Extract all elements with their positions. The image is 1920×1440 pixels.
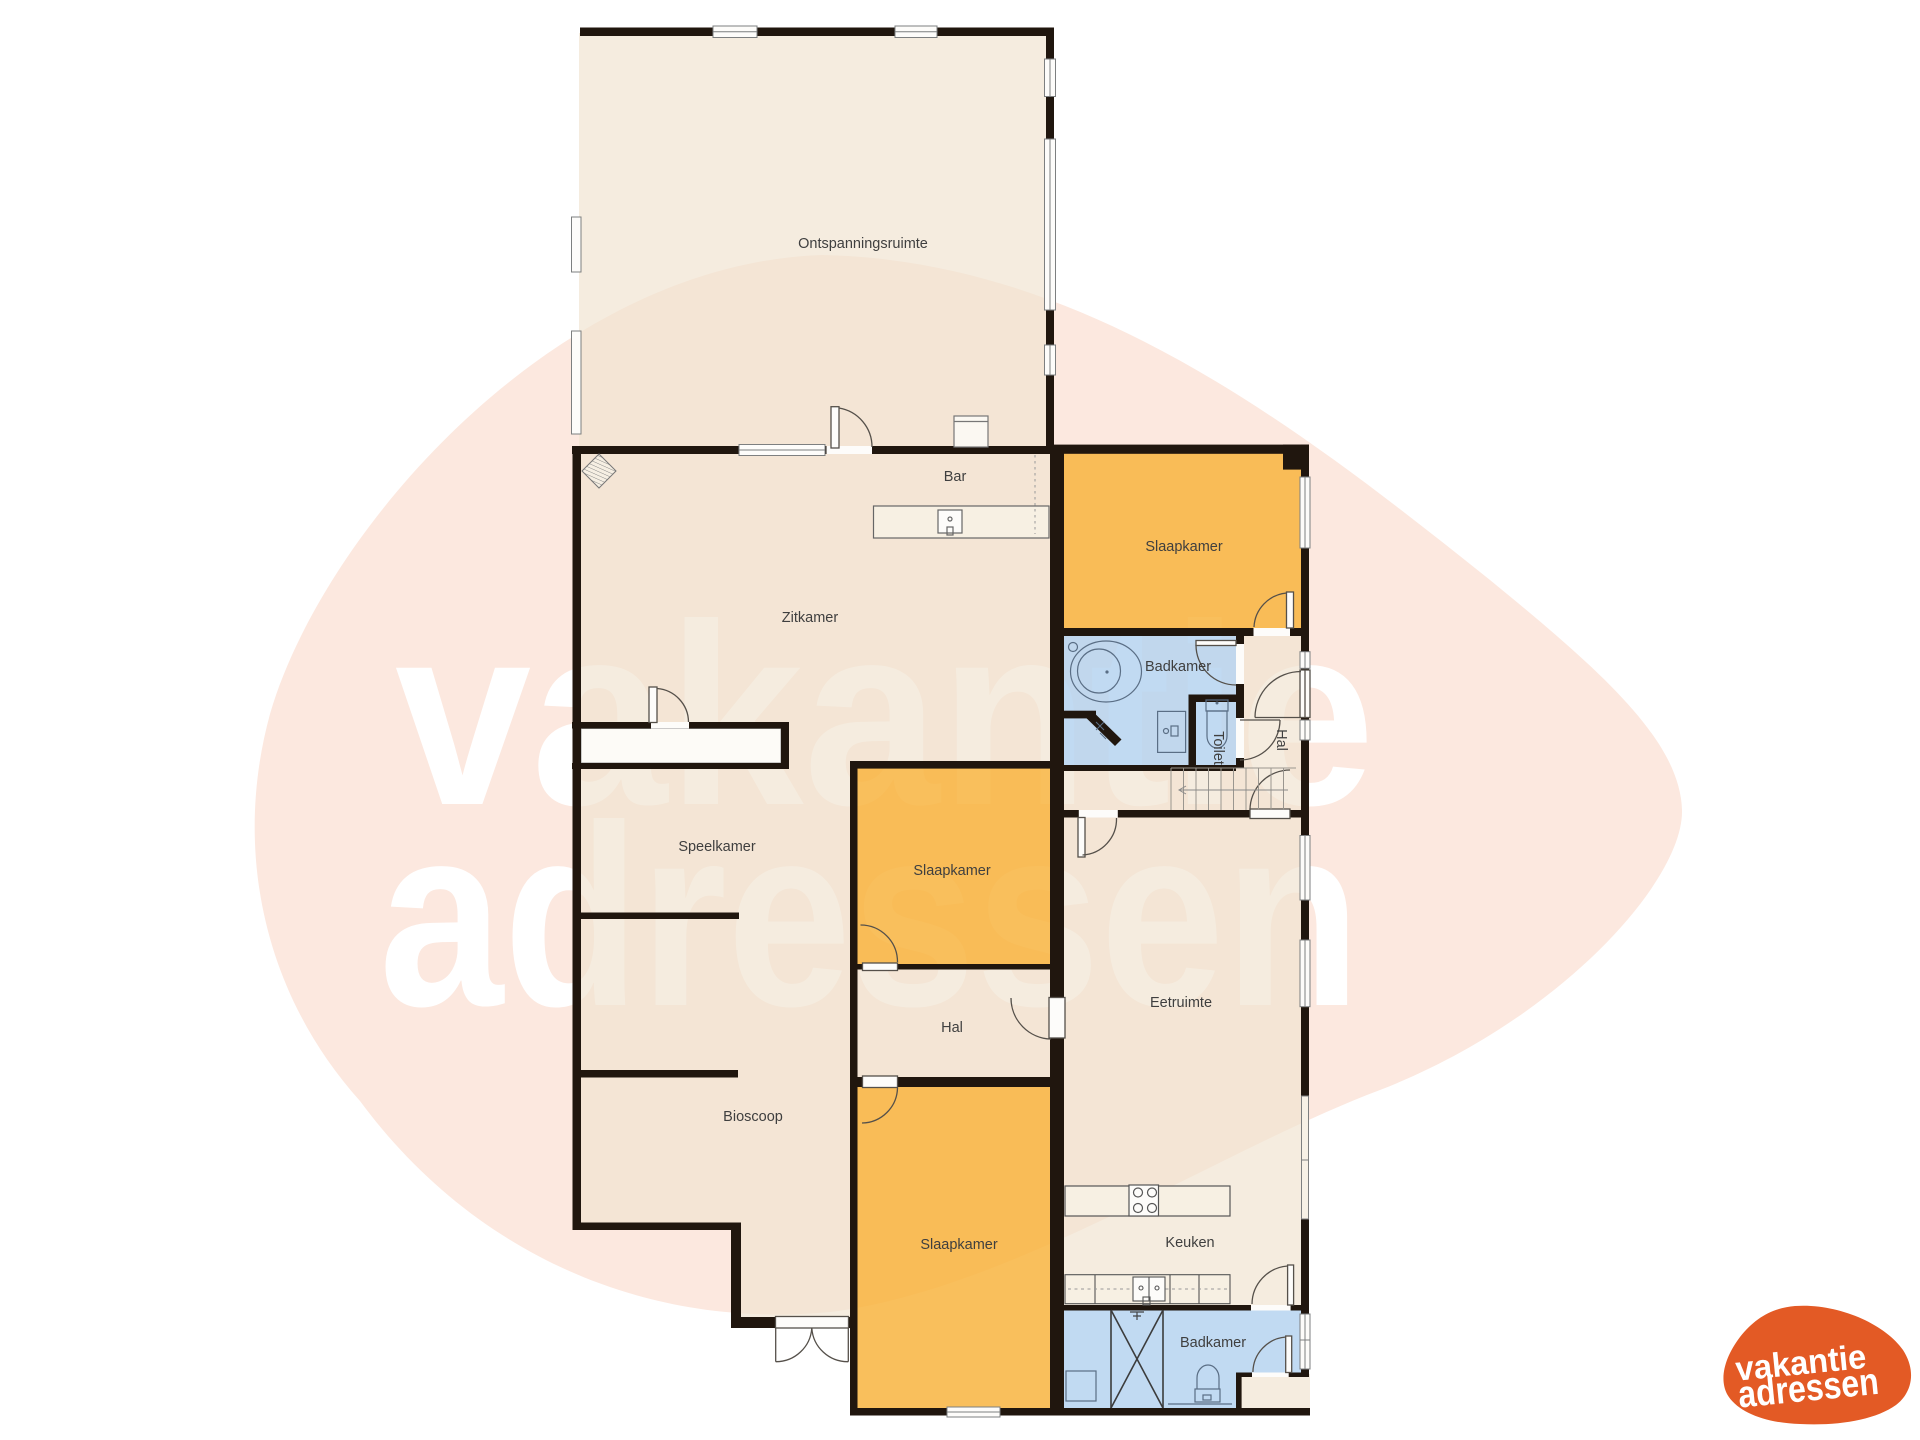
- svg-text:Ontspanningsruimte: Ontspanningsruimte: [798, 236, 928, 252]
- svg-text:Keuken: Keuken: [1165, 1235, 1214, 1251]
- svg-text:Slaapkamer: Slaapkamer: [913, 863, 991, 879]
- svg-text:Hal: Hal: [1273, 729, 1289, 751]
- svg-text:Slaapkamer: Slaapkamer: [1145, 539, 1223, 555]
- svg-text:Badkamer: Badkamer: [1145, 659, 1211, 675]
- svg-text:Slaapkamer: Slaapkamer: [920, 1237, 998, 1253]
- svg-text:Eetruimte: Eetruimte: [1150, 995, 1212, 1011]
- svg-text:Bioscoop: Bioscoop: [723, 1109, 783, 1125]
- svg-text:Zitkamer: Zitkamer: [782, 610, 839, 626]
- svg-text:Speelkamer: Speelkamer: [678, 839, 756, 855]
- svg-text:Badkamer: Badkamer: [1180, 1335, 1246, 1351]
- svg-text:Bar: Bar: [944, 469, 967, 485]
- svg-text:Toilet: Toilet: [1210, 731, 1226, 765]
- svg-text:Hal: Hal: [941, 1020, 963, 1036]
